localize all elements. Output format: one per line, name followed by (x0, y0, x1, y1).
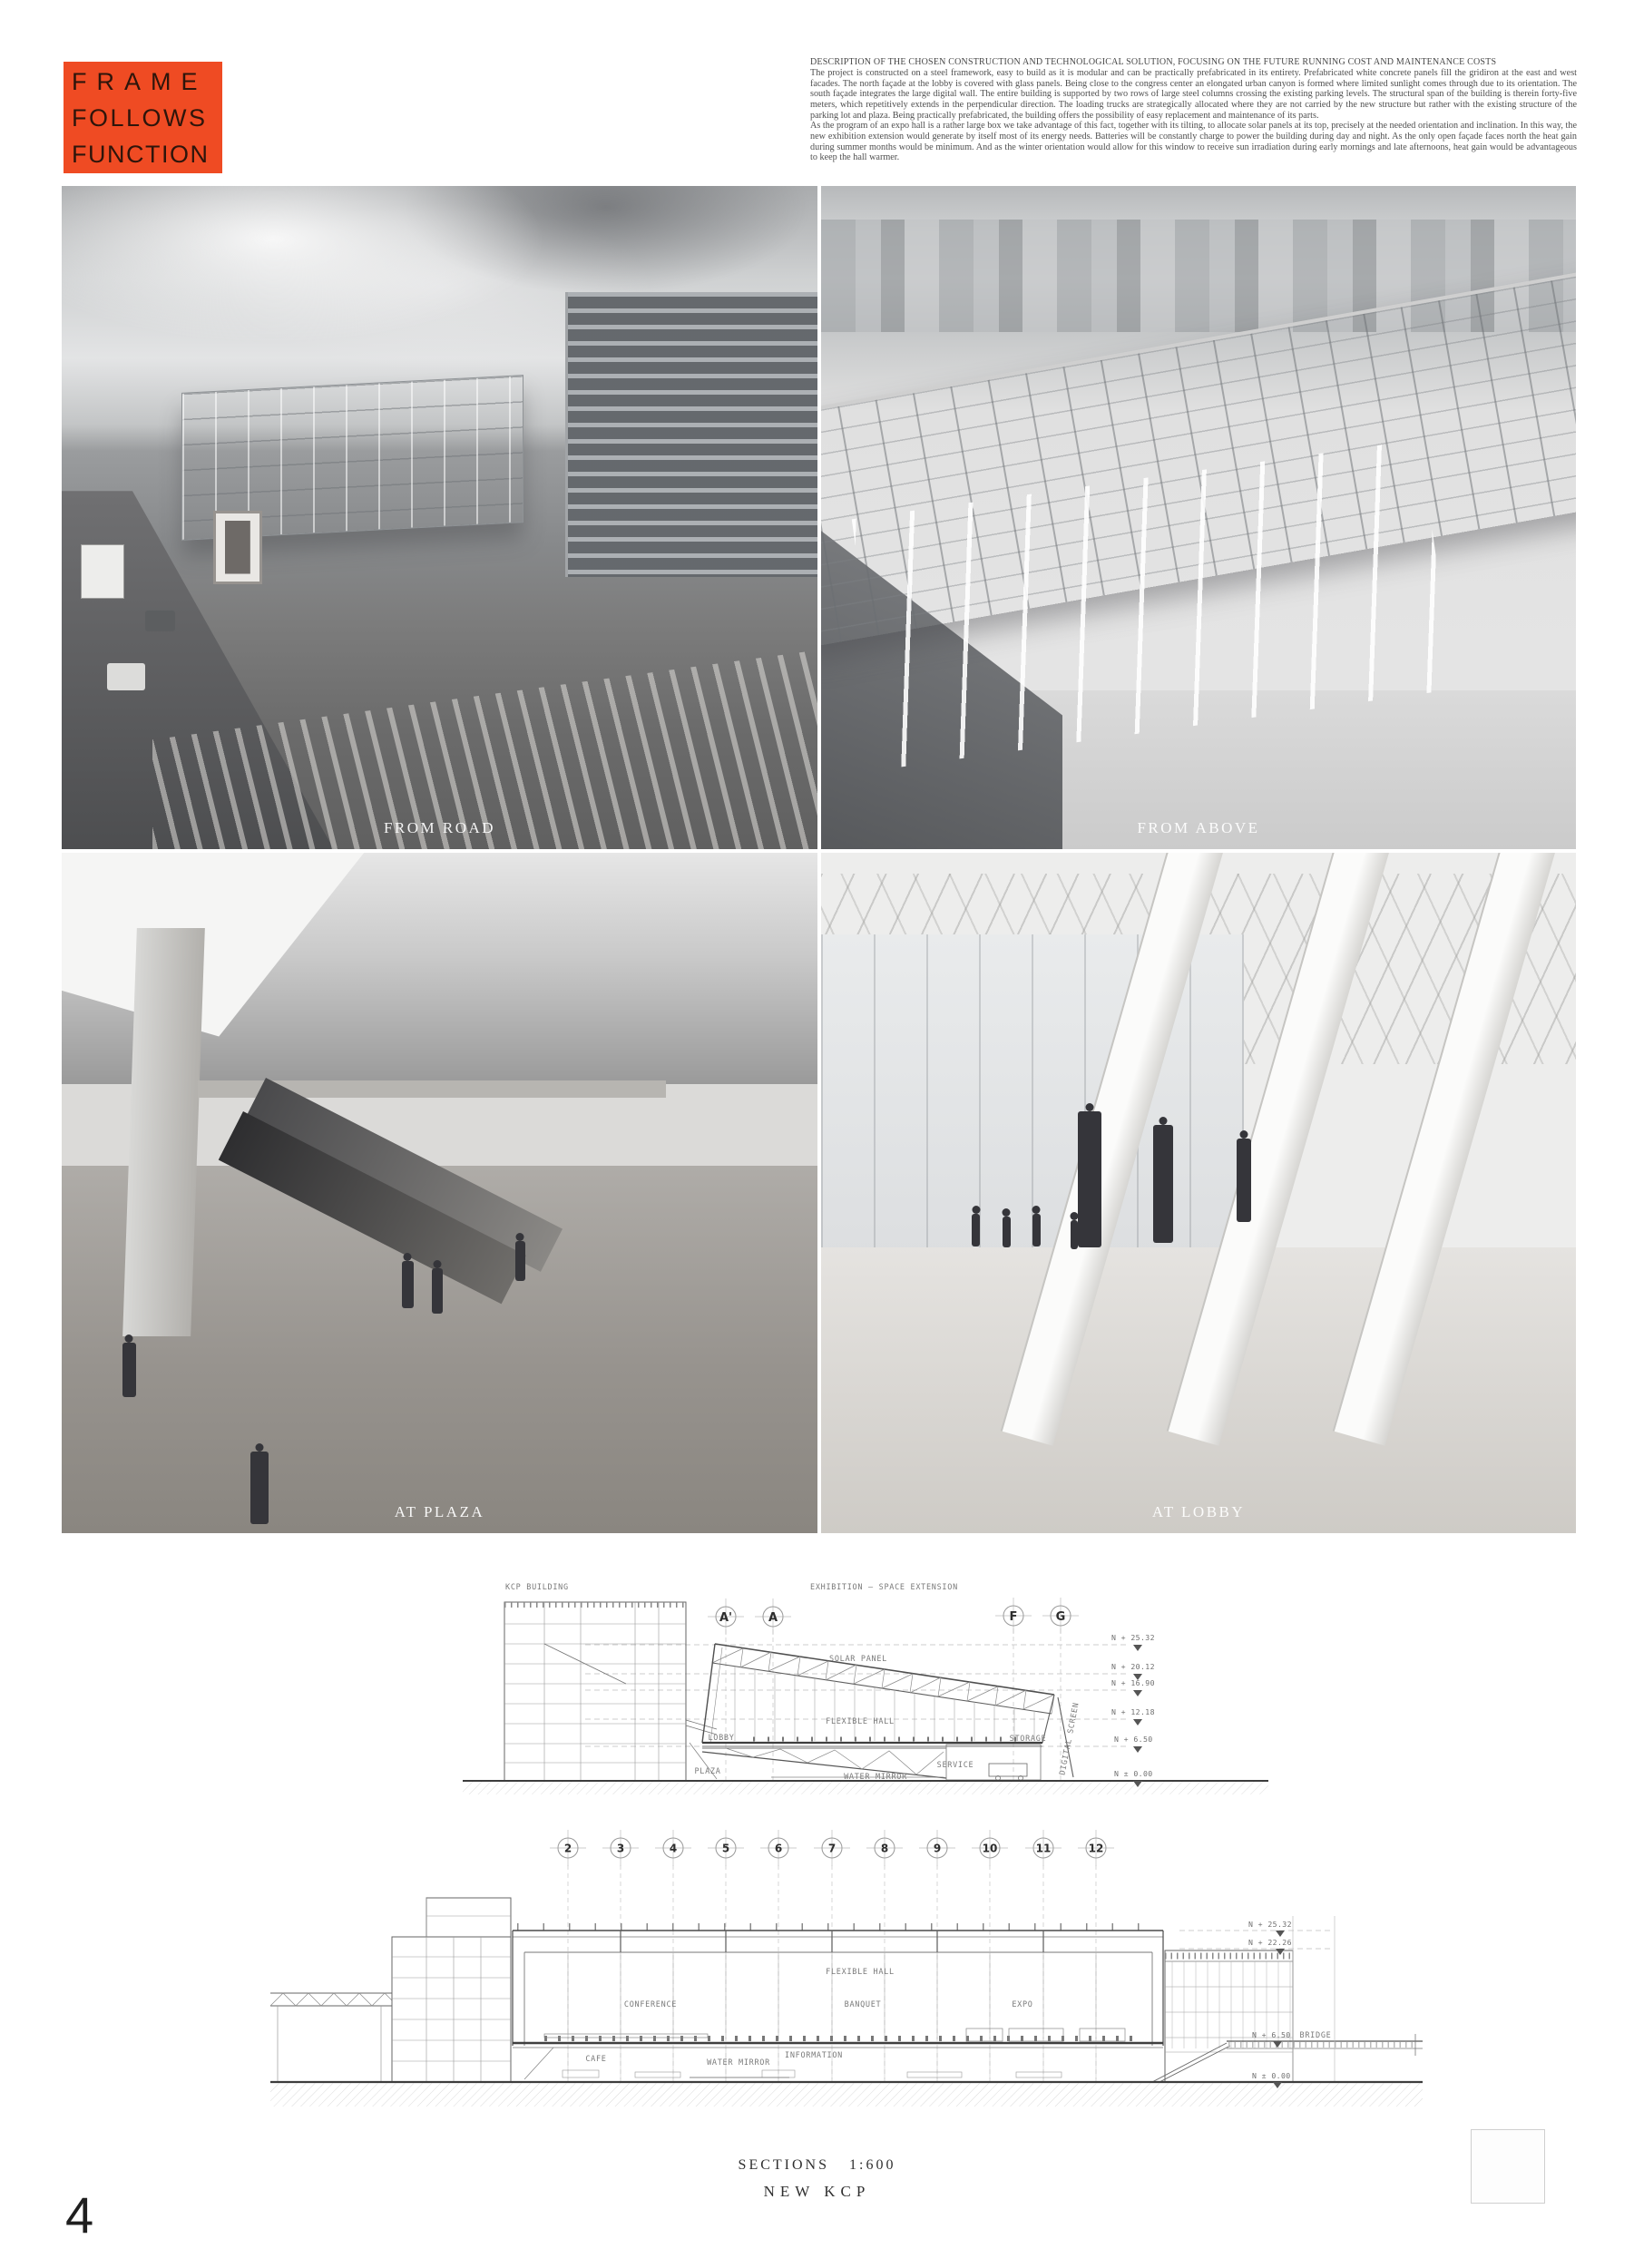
room-label-digital-screen: DIGITAL SCREEN (1058, 1702, 1081, 1776)
bridge-label: BRIDGE (1300, 2031, 1332, 2040)
grid-bubble: 5 (722, 1843, 729, 1855)
room-label-information: INFORMATION (785, 2051, 843, 2060)
grid-bubble: 9 (934, 1843, 941, 1855)
photo-caption: FROM ROAD (62, 819, 817, 837)
person-silhouette (122, 1343, 136, 1397)
column (122, 928, 205, 1336)
elevation-label: N + 20.12 (1111, 1662, 1155, 1671)
grid-bubble: F (1010, 1610, 1018, 1624)
grid-bubble: 11 (1036, 1843, 1052, 1855)
room-label-service: SERVICE (937, 1761, 974, 1770)
sections-label: SECTIONS (739, 2157, 829, 2173)
grid-bubble: 4 (670, 1843, 677, 1855)
logo-line-1: FRAME (72, 64, 222, 100)
description-heading: DESCRIPTION OF THE CHOSEN CONSTRUCTION A… (810, 57, 1577, 67)
room-label-conference: CONFERENCE (624, 2000, 677, 2009)
ground-line (463, 1781, 1268, 1794)
structural-grid: A' A F G (708, 1598, 1079, 1781)
grid-bubble: 7 (828, 1843, 836, 1855)
description-paragraph-2: As the program of an expo hall is a rath… (810, 121, 1577, 163)
photo-caption: FROM ABOVE (821, 819, 1576, 837)
section-drawing-aa: A' A F G (458, 1577, 1275, 1799)
elevation-label: N + 6.50 (1252, 2030, 1291, 2039)
person-silhouette (1078, 1111, 1101, 1247)
room-label-lobby: LOBBY (708, 1734, 734, 1743)
grid-bubble: 8 (881, 1843, 888, 1855)
photo-at-lobby: AT LOBBY (821, 853, 1576, 1533)
elevation-label: N + 25.32 (1111, 1633, 1155, 1642)
room-label-flexible-hall: FLEXIBLE HALL (826, 1968, 895, 1977)
corner-box (1471, 2129, 1545, 2204)
person-silhouette (1237, 1139, 1251, 1222)
person-silhouette (515, 1241, 525, 1281)
grid-bubble: 3 (617, 1843, 624, 1855)
section-drawing-long: 2 3 4 5 6 7 8 9 10 11 12 (268, 1825, 1429, 2116)
elevation-label: N + 6.50 (1114, 1735, 1153, 1744)
room-label-water-mirror: WATER MIRROR (844, 1773, 907, 1782)
person-silhouette (402, 1261, 414, 1308)
photo-at-plaza: AT PLAZA (62, 853, 817, 1533)
grid-bubble: 2 (564, 1843, 572, 1855)
photo-from-above: FROM ABOVE (821, 186, 1576, 849)
elevation-label: N + 22.26 (1248, 1938, 1292, 1947)
elevation-label: N + 25.32 (1248, 1920, 1292, 1929)
left-bridge-and-building (270, 1898, 511, 2082)
room-label-storage: STORAGE (1010, 1735, 1047, 1744)
grid-bubble: A' (719, 1611, 732, 1625)
room-label-water-mirror: WATER MIRROR (707, 2058, 770, 2068)
person-silhouette (432, 1268, 443, 1314)
person-silhouette (972, 1214, 980, 1246)
elevation-markers: N + 25.32 N + 20.12 N + 16.90 N + 12.18 … (1111, 1633, 1155, 1787)
page-number: 4 (65, 2190, 93, 2241)
elevation-label: N ± 0.00 (1252, 2071, 1291, 2080)
scale-value: 1:600 (849, 2157, 895, 2173)
kcp-building-label: KCP BUILDING (505, 1583, 569, 1592)
logo-line-2: FOLLOWS (72, 100, 222, 136)
room-label-plaza: PLAZA (694, 1767, 720, 1776)
elevation-label: N ± 0.00 (1114, 1769, 1153, 1778)
presentation-board: FRAME FOLLOWS FUNCTION DESCRIPTION OF TH… (0, 0, 1634, 2268)
frame-follows-function-logo: FRAME FOLLOWS FUNCTION (64, 62, 222, 173)
room-label-flexible-hall: FLEXIBLE HALL (826, 1717, 895, 1726)
person-silhouette (1071, 1220, 1078, 1249)
grid-bubble: G (1056, 1610, 1066, 1624)
grid-bubble: 10 (983, 1843, 998, 1855)
kcp-building-section (504, 1602, 717, 1781)
person-silhouette (1032, 1214, 1041, 1246)
person-silhouette (1003, 1217, 1011, 1247)
description-block: DESCRIPTION OF THE CHOSEN CONSTRUCTION A… (810, 57, 1577, 163)
billboard (213, 511, 262, 583)
truck (81, 544, 124, 599)
sections-scale-line: SECTIONS1:600 (0, 2157, 1634, 2174)
room-label-solar-panel: SOLAR PANEL (829, 1655, 887, 1664)
photo-from-road: FROM ROAD (62, 186, 817, 849)
ground-line (270, 2082, 1423, 2107)
room-label-expo: EXPO (1012, 2000, 1032, 2009)
project-title: NEW KCP (0, 2183, 1634, 2201)
car (107, 663, 145, 689)
elevation-label: N + 16.90 (1111, 1678, 1155, 1687)
exhibition-hall-section (690, 1644, 1073, 1781)
grid-bubble: 12 (1089, 1843, 1104, 1855)
office-building (565, 292, 817, 577)
photo-caption: AT LOBBY (821, 1503, 1576, 1521)
grid-bubble: 6 (775, 1843, 782, 1855)
car (145, 611, 175, 631)
elevation-label: N + 12.18 (1111, 1707, 1155, 1716)
room-label-banquet: BANQUET (845, 2000, 882, 2009)
description-paragraph-1: The project is constructed on a steel fr… (810, 68, 1577, 121)
room-label-cafe: CAFE (585, 2055, 606, 2064)
photo-caption: AT PLAZA (62, 1503, 817, 1521)
grid-bubble: A (768, 1611, 778, 1625)
extension-label: EXHIBITION – SPACE EXTENSION (810, 1583, 958, 1592)
person-silhouette (1153, 1125, 1173, 1243)
logo-line-3: FUNCTION (72, 136, 222, 172)
